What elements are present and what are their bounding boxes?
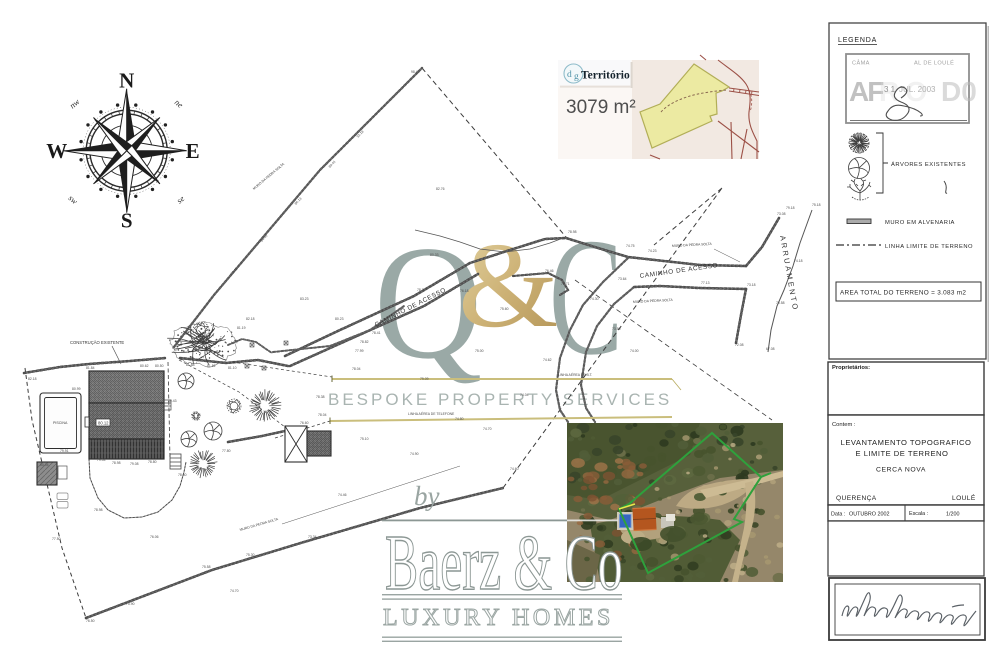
svg-text:75.30: 75.30: [246, 553, 255, 557]
svg-text:CÂMA: CÂMA: [852, 60, 870, 67]
svg-text:80.43: 80.43: [168, 399, 177, 403]
svg-text:Data :: Data :: [831, 512, 845, 518]
svg-text:74.30: 74.30: [590, 297, 599, 301]
svg-text:80.23: 80.23: [335, 317, 344, 321]
svg-text:LUXURY HOMES: LUXURY HOMES: [383, 605, 614, 631]
svg-text:75.18: 75.18: [812, 203, 821, 207]
svg-text:80.62: 80.62: [140, 364, 149, 368]
svg-text:Proprietários:: Proprietários:: [832, 365, 870, 371]
svg-text:MURO EM ALVENARIA: MURO EM ALVENARIA: [885, 220, 955, 226]
svg-text:98.46: 98.46: [411, 70, 420, 74]
svg-text:78.80: 78.80: [148, 460, 157, 464]
svg-text:79.04: 79.04: [97, 458, 106, 462]
svg-text:72.08: 72.08: [735, 343, 744, 347]
svg-text:78.98: 78.98: [568, 230, 577, 234]
svg-text:CERCA NOVA: CERCA NOVA: [876, 467, 926, 474]
svg-text:75.90: 75.90: [126, 602, 135, 606]
svg-text:79.08: 79.08: [130, 462, 139, 466]
svg-text:ÁRVORES EXISTENTES: ÁRVORES EXISTENTES: [891, 161, 966, 168]
svg-text:75.58: 75.58: [202, 565, 211, 569]
svg-text:77.13: 77.13: [701, 281, 710, 285]
svg-text:83.23: 83.23: [300, 297, 309, 301]
svg-text:81.19: 81.19: [237, 326, 246, 330]
svg-text:78.98: 78.98: [112, 461, 121, 465]
svg-text:76.50: 76.50: [86, 619, 95, 623]
svg-text:78.04: 78.04: [352, 367, 361, 371]
svg-text:78.60: 78.60: [178, 473, 187, 477]
svg-text:PISCINA: PISCINA: [53, 421, 68, 425]
svg-text:Contem :: Contem :: [832, 422, 856, 428]
svg-text:81.52: 81.52: [207, 364, 216, 368]
svg-text:81.88: 81.88: [186, 363, 195, 367]
svg-text:W: W: [46, 139, 67, 163]
svg-text:77.80: 77.80: [222, 449, 231, 453]
svg-text:73.64: 73.64: [618, 277, 627, 281]
svg-text:LINHA AÉREA DE TELEFONE: LINHA AÉREA DE TELEFONE: [408, 411, 455, 416]
svg-text:LINHA AÉREA DE B.T.: LINHA AÉREA DE B.T.: [558, 372, 592, 377]
svg-text:74.46: 74.46: [338, 493, 347, 497]
svg-text:75.10: 75.10: [360, 437, 369, 441]
svg-text:JUL. 2003: JUL. 2003: [899, 85, 936, 94]
svg-text:S: S: [121, 209, 133, 233]
svg-text:74.70: 74.70: [230, 589, 239, 593]
svg-text:70.58: 70.58: [776, 301, 785, 305]
svg-text:79.91: 79.91: [60, 449, 69, 453]
svg-text:AL DE LOULÉ: AL DE LOULÉ: [914, 60, 954, 67]
svg-text:78.38: 78.38: [316, 395, 325, 399]
svg-text:N: N: [119, 69, 134, 93]
svg-text:LEVANTAMENTO TOPOGRAFICO: LEVANTAMENTO TOPOGRAFICO: [841, 438, 972, 447]
svg-text:74.18: 74.18: [794, 259, 803, 263]
svg-text:76.18: 76.18: [460, 289, 469, 293]
svg-text:80.04: 80.04: [40, 463, 49, 467]
svg-text:73.50: 73.50: [612, 327, 621, 331]
svg-text:77.50: 77.50: [52, 537, 61, 541]
svg-text:81.84: 81.84: [86, 366, 95, 370]
svg-text:74.04: 74.04: [520, 393, 529, 397]
svg-text:78.04: 78.04: [318, 413, 327, 417]
svg-text:74.00: 74.00: [630, 349, 639, 353]
svg-text:AREA TOTAL DO TERRENO = 3.083: AREA TOTAL DO TERRENO = 3.083 m2: [840, 290, 966, 297]
svg-text:73.34: 73.34: [308, 535, 317, 539]
svg-text:78.41: 78.41: [372, 331, 381, 335]
svg-text:d: d: [567, 70, 572, 80]
svg-text:3 1: 3 1: [884, 85, 896, 94]
svg-text:80.50: 80.50: [155, 364, 164, 368]
svg-text:82.76: 82.76: [436, 187, 445, 191]
svg-text:1/200: 1/200: [946, 512, 960, 518]
svg-text:LOULÉ: LOULÉ: [952, 493, 976, 502]
svg-text:75.60: 75.60: [500, 307, 509, 311]
svg-text:82.18: 82.18: [246, 317, 255, 321]
svg-text:76.46: 76.46: [545, 269, 554, 273]
svg-text:74.23: 74.23: [648, 249, 657, 253]
svg-text:73.08: 73.08: [777, 212, 786, 216]
svg-text:78.98: 78.98: [94, 508, 103, 512]
svg-text:LEGENDA: LEGENDA: [838, 37, 877, 44]
svg-text:74.70: 74.70: [483, 427, 492, 431]
svg-text:by: by: [414, 481, 440, 511]
svg-text:74.62: 74.62: [543, 358, 552, 362]
svg-text:OUTUBRO 2002: OUTUBRO 2002: [849, 512, 889, 518]
svg-text:QUERENÇA: QUERENÇA: [836, 495, 877, 502]
svg-text:80.99: 80.99: [72, 387, 81, 391]
svg-text:78.82: 78.82: [360, 340, 369, 344]
svg-text:BESPOKE PROPERTY SERVICES: BESPOKE PROPERTY SERVICES: [328, 390, 672, 409]
svg-text:3079 m²: 3079 m²: [566, 97, 636, 118]
svg-text:76.60: 76.60: [300, 421, 309, 425]
svg-text:Território: Território: [581, 70, 630, 82]
svg-text:67.08: 67.08: [766, 347, 775, 351]
svg-text:75.71: 75.71: [561, 282, 570, 286]
svg-text:76.06: 76.06: [150, 535, 159, 539]
svg-text:80.12: 80.12: [98, 420, 109, 425]
svg-text:Escala :: Escala :: [909, 511, 928, 517]
svg-text:81.10: 81.10: [228, 366, 237, 370]
svg-text:g: g: [574, 72, 579, 82]
svg-text:73.18: 73.18: [747, 283, 756, 287]
svg-text:77.99: 77.99: [355, 349, 364, 353]
svg-text:82.18: 82.18: [28, 377, 37, 381]
svg-text:LINHA LIMITE DE TERRENO: LINHA LIMITE DE TERRENO: [885, 244, 973, 250]
svg-text:D0: D0: [941, 76, 977, 107]
svg-text:78.70: 78.70: [417, 288, 426, 292]
svg-text:Baerz & Co: Baerz & Co: [385, 520, 623, 607]
svg-text:74.90: 74.90: [410, 452, 419, 456]
svg-text:74.60: 74.60: [510, 467, 519, 471]
svg-text:75.00: 75.00: [475, 349, 484, 353]
svg-text:74.80: 74.80: [455, 417, 464, 421]
svg-text:E: E: [186, 139, 200, 163]
svg-text:79.09: 79.09: [420, 377, 429, 381]
svg-text:80.33: 80.33: [430, 253, 439, 257]
svg-text:74.75: 74.75: [626, 244, 635, 248]
svg-text:79.18: 79.18: [786, 206, 795, 210]
svg-text:CONSTRUÇÃO EXISTENTE: CONSTRUÇÃO EXISTENTE: [70, 340, 124, 345]
svg-text:E LIMITE DE TERRENO: E LIMITE DE TERRENO: [856, 449, 949, 458]
